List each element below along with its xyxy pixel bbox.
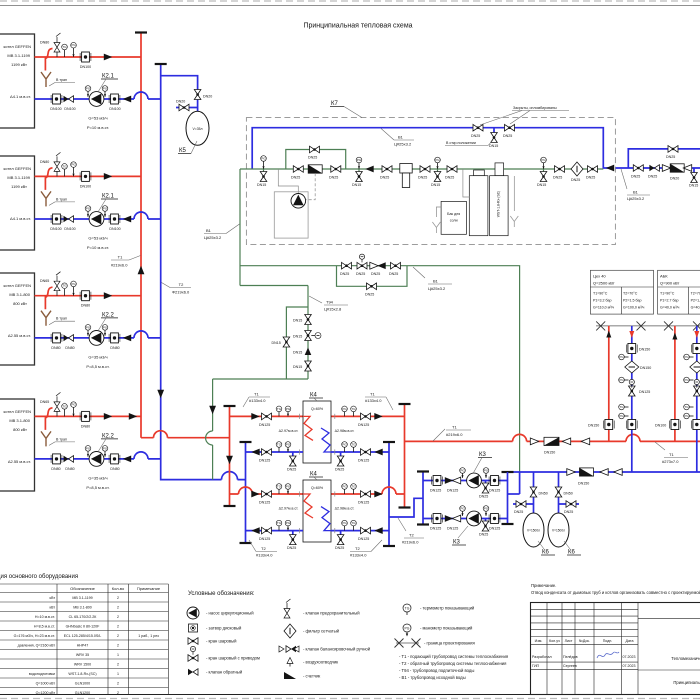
svg-text:В трап: В трап: [56, 317, 67, 321]
svg-text:Δ4.1 м.в.ст.: Δ4.1 м.в.ст.: [10, 94, 31, 99]
svg-text:DN20: DN20: [176, 100, 185, 104]
svg-text:G=35 м3/ч: G=35 м3/ч: [88, 475, 107, 480]
svg-text:DN25: DN25: [287, 546, 296, 550]
svg-text:ECL 125-285/4/15.0S/L: ECL 125-285/4/15.0S/L: [64, 634, 101, 638]
svg-text:WRV 1500: WRV 1500: [74, 663, 91, 667]
svg-text:- клапан балансировочный ручно: - клапан балансировочный ручной: [303, 647, 371, 652]
svg-text:DN15: DN15: [293, 319, 302, 323]
svg-text:DN15: DN15: [257, 183, 266, 187]
svg-text:В откр.положении: В откр.положении: [446, 141, 476, 145]
svg-text:Т1=90°С: Т1=90°С: [660, 292, 675, 296]
svg-text:DN100: DN100: [50, 227, 61, 231]
svg-text:DN125: DN125: [358, 501, 369, 505]
svg-text:DN50: DN50: [564, 492, 573, 496]
svg-text:Обозначение: Обозначение: [70, 586, 96, 591]
svg-text:DN15: DN15: [272, 341, 281, 345]
svg-text:- клапан предохранительный: - клапан предохранительный: [303, 611, 360, 616]
svg-text:TG: TG: [405, 607, 410, 611]
svg-text:Δ2.55 м.в.ст.: Δ2.55 м.в.ст.: [8, 333, 31, 338]
svg-text:GLN1000: GLN1000: [75, 682, 90, 686]
svg-text:DN80: DN80: [110, 346, 119, 350]
svg-text:DN125: DN125: [447, 527, 458, 531]
svg-text:DN80: DN80: [65, 467, 74, 471]
svg-text:DN25: DN25: [291, 176, 300, 180]
svg-text:- манометр показывающий: - манометр показывающий: [420, 626, 473, 631]
svg-text:Р2=1,5: Р2=1,5: [691, 299, 700, 303]
svg-text:давления, Q=2160 кВт: давления, Q=2160 кВт: [18, 644, 56, 648]
svg-text:Ц#15х2.8: Ц#15х2.8: [324, 307, 342, 312]
svg-text:Сергеев: Сергеев: [563, 664, 577, 668]
svg-text:Т1=90°С: Т1=90°С: [593, 292, 608, 296]
svg-text:G=35 м3/ч: G=35 м3/ч: [88, 354, 107, 359]
svg-text:DN100: DN100: [64, 227, 75, 231]
svg-text:Т94: Т94: [326, 300, 334, 305]
svg-text:07.2023: 07.2023: [623, 664, 636, 668]
svg-text:- Т94 - трубопровод подпиточно: - Т94 - трубопровод подпиточной воды: [399, 668, 474, 673]
svg-text:#273х7.0: #273х7.0: [662, 459, 679, 464]
svg-text:2: 2: [117, 606, 119, 610]
svg-text:DN80: DN80: [65, 346, 74, 350]
svg-text:В трап: В трап: [56, 437, 67, 441]
svg-text:DN100: DN100: [655, 424, 666, 428]
svg-text:G=53 м3/ч: G=53 м3/ч: [88, 116, 107, 121]
svg-text:DN25: DN25: [371, 272, 380, 276]
svg-text:К2.1: К2.1: [102, 74, 114, 80]
svg-text:- счетчик: - счетчик: [303, 674, 320, 679]
svg-text:CL 65-170/2/2.2К: CL 65-170/2/2.2К: [69, 615, 98, 619]
svg-text:1: 1: [117, 672, 119, 676]
svg-text:1 раб., 1 рез: 1 раб., 1 рез: [138, 634, 159, 638]
svg-text:07.2023: 07.2023: [623, 655, 636, 659]
svg-text:Кол.уч: Кол.уч: [549, 639, 560, 643]
svg-text:Ц#25х3.2: Ц#25х3.2: [204, 235, 222, 240]
svg-text:DN25: DN25: [666, 155, 675, 159]
svg-text:Условные обозначения:: Условные обозначения:: [188, 591, 255, 597]
svg-text:Р1=3.2 бар: Р1=3.2 бар: [593, 299, 611, 303]
svg-text:Р=8,5 м.в.ст.: Р=8,5 м.в.ст.: [86, 485, 109, 490]
svg-text:В1: В1: [433, 279, 439, 284]
svg-text:Т2: Т2: [355, 546, 360, 551]
svg-text:№Док.: №Док.: [579, 639, 590, 643]
svg-text:Закрыты, опломбированы: Закрыты, опломбированы: [513, 106, 557, 110]
svg-text:- клапан обратный: - клапан обратный: [206, 670, 243, 675]
svg-text:DN25: DN25: [418, 176, 427, 180]
svg-text:800 кВт: 800 кВт: [13, 427, 27, 432]
svg-text:2: 2: [117, 663, 119, 667]
svg-text:МВ 3.1-800: МВ 3.1-800: [9, 292, 30, 297]
svg-text:800 кВт: 800 кВт: [13, 301, 27, 306]
svg-text:DN25: DN25: [329, 176, 338, 180]
svg-text:Δ2.55 м.в.ст.: Δ2.55 м.в.ст.: [8, 459, 31, 464]
svg-text:Т1: Т1: [118, 255, 123, 260]
svg-text:Ц#25х3.2: Ц#25х3.2: [394, 142, 412, 147]
svg-text:Кол-во: Кол-во: [112, 586, 125, 591]
svg-text:DN125: DN125: [259, 423, 270, 427]
svg-text:DN80: DN80: [51, 346, 60, 350]
svg-text:Принципиальная тепловая схема: Принципиальная тепловая схема: [303, 23, 412, 30]
svg-text:#219х6.0: #219х6.0: [446, 432, 463, 437]
svg-text:МВ 3.1-1199: МВ 3.1-1199: [7, 53, 30, 58]
svg-text:К2.2: К2.2: [102, 433, 114, 439]
svg-text:#219х6.0: #219х6.0: [111, 263, 128, 268]
svg-text:#133х4.0: #133х4.0: [350, 553, 367, 558]
svg-text:#133х4.0: #133х4.0: [256, 553, 273, 558]
svg-text:Т2: Т2: [409, 533, 414, 538]
svg-text:DN25: DN25: [471, 134, 480, 138]
svg-text:DN25: DN25: [356, 272, 365, 276]
svg-text:К4: К4: [310, 393, 317, 399]
svg-text:Р1=2.7 бар: Р1=2.7 бар: [660, 299, 678, 303]
svg-text:DN125: DN125: [259, 501, 270, 505]
svg-text:Изм.: Изм.: [535, 639, 543, 643]
svg-text:DN80: DN80: [110, 467, 119, 471]
svg-text:К2.1: К2.1: [102, 194, 114, 200]
svg-text:Т2: Т2: [179, 282, 184, 287]
svg-text:- В1 - трубопровод исходной во: - В1 - трубопровод исходной воды: [399, 675, 466, 680]
svg-text:- насос циркуляционный: - насос циркуляционный: [206, 611, 254, 616]
svg-text:1199 кВт: 1199 кВт: [11, 62, 27, 67]
svg-text:Бак для: Бак для: [447, 212, 460, 216]
svg-text:DN15: DN15: [352, 183, 361, 187]
svg-text:Разработал: Разработал: [532, 655, 552, 659]
svg-text:G=176 м3/ч, Н=23 м.в.ст.: G=176 м3/ч, Н=23 м.в.ст.: [14, 634, 55, 638]
svg-text:Q=1000 кВт: Q=1000 кВт: [36, 682, 56, 686]
svg-text:Δ2.98м.в.ст.: Δ2.98м.в.ст.: [335, 507, 355, 511]
svg-text:К4: К4: [310, 472, 317, 478]
svg-text:DN25: DN25: [648, 175, 657, 179]
svg-text:Q=2500 кВт: Q=2500 кВт: [593, 281, 615, 286]
svg-text:- граница проектирования: - граница проектирования: [424, 641, 475, 646]
svg-text:МВ 3.1-800: МВ 3.1-800: [73, 606, 92, 610]
svg-text:DN15: DN15: [293, 365, 302, 369]
svg-text:Т1: Т1: [370, 392, 375, 397]
svg-text:DN25: DN25: [564, 510, 573, 514]
svg-text:2: 2: [117, 634, 119, 638]
svg-text:#133х4.0: #133х4.0: [249, 398, 266, 403]
svg-text:МВ 3.1-800: МВ 3.1-800: [9, 418, 30, 423]
svg-text:#133х4.0: #133х4.0: [365, 398, 382, 403]
svg-text:Р=10 м.в.ст.: Р=10 м.в.ст.: [87, 125, 109, 130]
svg-text:DN80: DN80: [81, 424, 90, 428]
svg-text:DN15: DN15: [489, 144, 498, 148]
svg-text:- кран шаровый: - кран шаровый: [206, 639, 237, 644]
svg-text:V=1500л: V=1500л: [552, 529, 565, 533]
svg-text:DN80: DN80: [40, 160, 49, 164]
svg-text:ННР47: ННР47: [77, 644, 89, 648]
svg-text:DN25: DN25: [380, 176, 389, 180]
svg-text:DN25: DN25: [335, 468, 344, 472]
svg-text:DN15: DN15: [431, 183, 440, 187]
svg-text:DN150: DN150: [640, 366, 651, 370]
svg-text:котел GEFFEN: котел GEFFEN: [4, 283, 32, 288]
svg-text:DN150: DN150: [639, 348, 650, 352]
svg-text:К3: К3: [479, 452, 486, 458]
svg-text:Ф219х6.0: Ф219х6.0: [172, 290, 190, 295]
svg-text:МВ 3.1-1199: МВ 3.1-1199: [7, 175, 30, 180]
svg-text:DN125: DN125: [430, 489, 441, 493]
svg-text:DN125: DN125: [430, 527, 441, 531]
svg-text:DN25: DN25: [631, 175, 640, 179]
svg-text:DN25: DN25: [503, 134, 512, 138]
svg-text:G=40,0: G=40,0: [691, 306, 700, 310]
svg-text:DN125: DN125: [489, 527, 500, 531]
svg-text:DN150: DN150: [588, 424, 599, 428]
svg-text:Q=60%: Q=60%: [311, 486, 324, 490]
svg-text:К7: К7: [331, 101, 338, 107]
svg-text:V=1500л: V=1500л: [527, 529, 540, 533]
svg-text:Т2=70°: Т2=70°: [691, 292, 700, 296]
svg-text:2: 2: [117, 596, 119, 600]
svg-text:DN100: DN100: [80, 184, 91, 188]
svg-text:DN25: DN25: [389, 272, 398, 276]
svg-text:2: 2: [117, 644, 119, 648]
svg-text:Н=10 м.в.ст.: Н=10 м.в.ст.: [35, 615, 55, 619]
svg-text:- кран шаровый с приводом: - кран шаровый с приводом: [206, 656, 260, 661]
svg-text:G=100,0 м³/ч: G=100,0 м³/ч: [623, 306, 645, 310]
svg-text:DN100: DN100: [80, 65, 91, 69]
svg-text:Т1: Т1: [669, 452, 674, 457]
svg-text:DN25: DN25: [514, 510, 523, 514]
svg-text:Δ4.1 м.в.ст.: Δ4.1 м.в.ст.: [10, 216, 31, 221]
svg-text:Отвод конденсата от дымовых тр: Отвод конденсата от дымовых труб и котло…: [531, 590, 700, 595]
svg-text:DN125: DN125: [259, 537, 270, 541]
svg-text:DN25: DN25: [553, 176, 562, 180]
svg-text:1199 кВт: 1199 кВт: [11, 184, 27, 189]
svg-text:G=40,0 м³/ч: G=40,0 м³/ч: [660, 306, 680, 310]
svg-text:соли: соли: [450, 219, 458, 223]
svg-text:Р=8,5 м.в.ст.: Р=8,5 м.в.ст.: [86, 364, 109, 369]
svg-text:Пелёдов: Пелёдов: [563, 655, 578, 659]
svg-text:кВт: кВт: [50, 606, 56, 610]
svg-text:2: 2: [117, 682, 119, 686]
svg-text:2: 2: [117, 615, 119, 619]
svg-text:В1: В1: [633, 190, 639, 195]
svg-text:Δ2.97м.в.ст.: Δ2.97м.в.ст.: [279, 507, 299, 511]
svg-text:#219х6.0: #219х6.0: [402, 540, 419, 545]
svg-text:Лист: Лист: [565, 639, 573, 643]
svg-text:Q=60%: Q=60%: [311, 407, 324, 411]
svg-text:Примечание: Примечание: [137, 586, 161, 591]
svg-text:DN100: DN100: [109, 107, 120, 111]
svg-text:котел GEFFEN: котел GEFFEN: [4, 409, 32, 414]
svg-text:DN15: DN15: [689, 184, 698, 188]
svg-text:Т1: Т1: [452, 425, 457, 430]
svg-text:Спецификация основного оборудо: Спецификация основного оборудования: [0, 574, 78, 580]
svg-text:G=110,0 м³/ч: G=110,0 м³/ч: [593, 306, 614, 310]
svg-text:Δ2.98м.в.ст.: Δ2.98м.в.ст.: [335, 429, 355, 433]
svg-text:Q=900 кВт: Q=900 кВт: [660, 281, 680, 286]
svg-text:В трап: В трап: [56, 78, 67, 82]
svg-text:PG: PG: [405, 627, 410, 631]
svg-text:Подп.: Подп.: [603, 639, 613, 643]
svg-text:К2.2: К2.2: [102, 312, 114, 318]
svg-text:DN100: DN100: [64, 107, 75, 111]
svg-text:Дата: Дата: [626, 639, 634, 643]
svg-text:ГИП: ГИП: [532, 664, 540, 668]
svg-text:DN25: DN25: [445, 176, 454, 180]
svg-text:2: 2: [117, 625, 119, 629]
svg-text:DN125: DN125: [358, 537, 369, 541]
svg-text:DN15: DN15: [293, 351, 302, 355]
svg-text:DN25: DN25: [586, 176, 595, 180]
svg-text:Н=8,5 м.в.ст.: Н=8,5 м.в.ст.: [34, 625, 55, 629]
svg-text:DN25: DN25: [479, 533, 488, 537]
svg-text:DN80: DN80: [40, 41, 49, 45]
svg-text:DN15: DN15: [537, 183, 546, 187]
svg-text:DN125: DN125: [358, 423, 369, 427]
svg-text:DN20: DN20: [670, 177, 679, 181]
svg-text:DN125: DN125: [489, 489, 500, 493]
svg-text:Ц#25х3.2: Ц#25х3.2: [627, 196, 645, 201]
svg-text:DN65: DN65: [40, 400, 49, 404]
svg-text:DN25: DN25: [335, 546, 344, 550]
svg-text:DN125: DN125: [447, 489, 458, 493]
svg-text:- термометр показывающий: - термометр показывающий: [420, 606, 475, 611]
svg-text:DN15: DN15: [293, 335, 302, 339]
svg-text:1: 1: [117, 653, 119, 657]
svg-text:DN25: DN25: [479, 495, 488, 499]
svg-text:DN100: DN100: [109, 227, 120, 231]
svg-text:Р=10 м.в.ст.: Р=10 м.в.ст.: [87, 245, 109, 250]
svg-text:V=35л: V=35л: [193, 127, 203, 131]
svg-text:Δ2.97м.в.ст.: Δ2.97м.в.ст.: [279, 429, 299, 433]
svg-text:WRV 35: WRV 35: [76, 653, 89, 657]
svg-text:водоподготовки: водоподготовки: [29, 672, 55, 676]
svg-text:WST-1.8-Rx-(SC): WST-1.8-Rx-(SC): [497, 191, 501, 218]
svg-text:DN100: DN100: [50, 107, 61, 111]
svg-text:МВ 3.1-1199: МВ 3.1-1199: [72, 596, 92, 600]
svg-text:DN25: DN25: [571, 178, 580, 182]
svg-text:DN25: DN25: [287, 468, 296, 472]
svg-text:кВт: кВт: [50, 596, 56, 600]
svg-text:- фильтр сетчатый: - фильтр сетчатый: [303, 629, 340, 634]
svg-text:Т1: Т1: [254, 392, 259, 397]
svg-text:DN150: DN150: [544, 451, 555, 455]
svg-text:DN80: DN80: [81, 304, 90, 308]
svg-text:К6: К6: [568, 550, 575, 556]
svg-text:В трап: В трап: [56, 197, 67, 201]
svg-text:Т2=70°С: Т2=70°С: [623, 292, 638, 296]
svg-text:Цех 40: Цех 40: [593, 274, 606, 279]
svg-text:DN25: DN25: [365, 293, 374, 297]
svg-text:Р2=1.5 бар: Р2=1.5 бар: [623, 299, 641, 303]
svg-text:Т2: Т2: [261, 546, 266, 551]
svg-text:DN80: DN80: [51, 467, 60, 471]
svg-text:DN25: DN25: [308, 156, 317, 160]
svg-text:Принципиальная тепловая схема: Принципиальная тепловая схема: [673, 680, 700, 685]
svg-text:G=53 м3/ч: G=53 м3/ч: [88, 236, 107, 241]
svg-text:- затвор дисковый: - затвор дисковый: [206, 626, 242, 631]
svg-text:DN65: DN65: [40, 279, 49, 283]
svg-text:К5: К5: [179, 148, 186, 154]
svg-text:DN25: DN25: [340, 272, 349, 276]
svg-text:WST-1.8-Rx-(SC): WST-1.8-Rx-(SC): [68, 672, 96, 676]
svg-text:В1: В1: [398, 135, 404, 140]
svg-text:GHNbasic II 80-120F: GHNbasic II 80-120F: [66, 625, 101, 629]
svg-text:Примечание.: Примечание.: [531, 583, 556, 588]
svg-text:DN50: DN50: [539, 492, 548, 496]
svg-text:DN20: DN20: [203, 95, 212, 99]
svg-text:- воздухоотводчик: - воздухоотводчик: [303, 660, 338, 665]
svg-text:DN125: DN125: [259, 459, 270, 463]
svg-text:- Т1 - подающий трубопровод си: - Т1 - подающий трубопровод системы тепл…: [399, 654, 508, 659]
svg-text:К6: К6: [542, 550, 549, 556]
svg-text:К3: К3: [453, 540, 460, 546]
svg-text:Ц#25х3.2: Ц#25х3.2: [428, 286, 446, 291]
svg-text:АБК: АБК: [660, 274, 668, 279]
svg-text:котел GEFFEN: котел GEFFEN: [4, 166, 32, 171]
svg-text:Тепломеханические решения: Тепломеханические решения: [671, 656, 700, 661]
svg-text:DN125: DN125: [358, 459, 369, 463]
svg-text:DN150: DN150: [578, 482, 589, 486]
svg-text:В1: В1: [206, 228, 212, 233]
svg-text:DN125: DN125: [639, 390, 650, 394]
svg-text:котел GEFFEN: котел GEFFEN: [4, 44, 32, 49]
svg-text:- Т2 - обратный трубопровод си: - Т2 - обратный трубопровод системы тепл…: [399, 661, 506, 666]
